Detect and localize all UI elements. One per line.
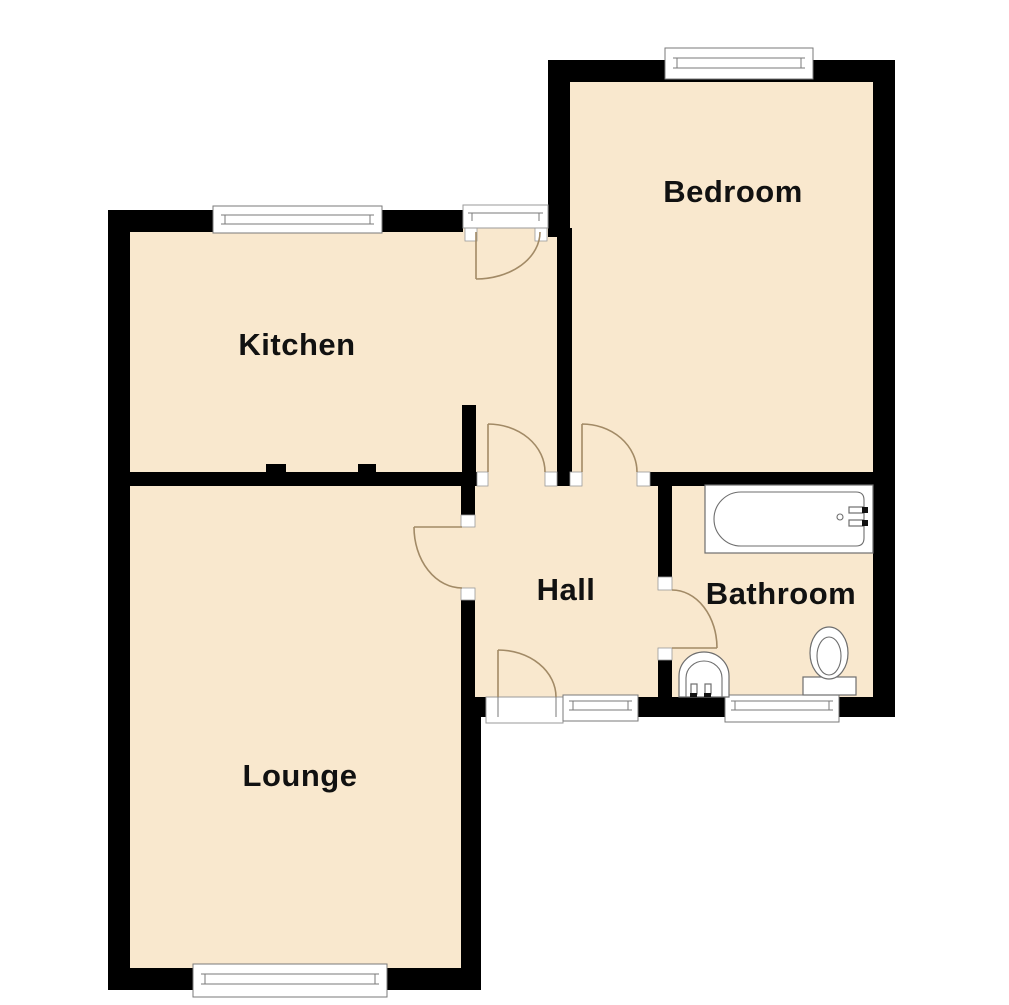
bathroom-window (725, 695, 839, 722)
hall-window (563, 695, 638, 721)
entry-door-sill (463, 205, 548, 228)
kitchen-window (213, 206, 382, 233)
room-bedroom-floor (570, 82, 873, 472)
rear-door-threshold (486, 697, 563, 723)
room-lounge-floor (130, 486, 461, 968)
floor-plan-drawing (0, 0, 1009, 1005)
washbasin (679, 652, 729, 697)
lounge-window (193, 964, 387, 997)
bedroom-window (665, 48, 813, 79)
room-label-bathroom: Bathroom (706, 576, 856, 612)
room-label-hall: Hall (537, 572, 596, 608)
floor-plan: Bedroom Kitchen Hall Bathroom Lounge (0, 0, 1009, 1005)
room-label-kitchen: Kitchen (238, 327, 355, 363)
room-label-bedroom: Bedroom (663, 174, 803, 210)
bathtub (705, 485, 873, 553)
room-label-lounge: Lounge (243, 758, 358, 794)
